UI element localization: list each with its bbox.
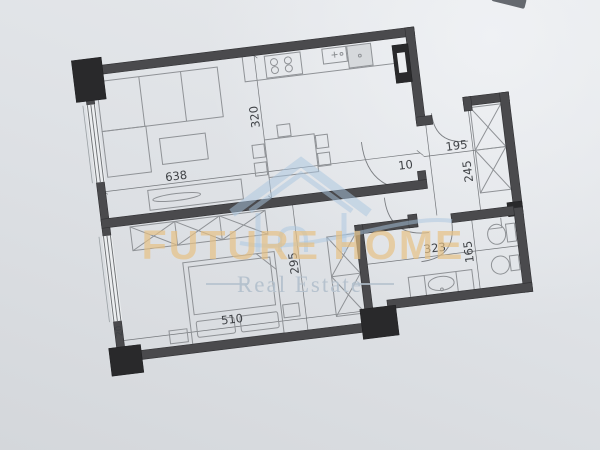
bidet-bowl: [490, 255, 510, 275]
floor-plan-photo: 320 638 10 195 245 295 510 20 323 165 FU: [0, 0, 600, 450]
sink-faucet-cross: [331, 51, 338, 58]
coffee-table: [159, 133, 208, 164]
stove-burner: [271, 66, 279, 74]
dim-living-depth: 320: [246, 105, 263, 128]
walls: [71, 8, 537, 376]
sofa-cushion-lines: [139, 72, 187, 127]
entrance-pivot: [463, 96, 473, 111]
dim-entry-stub: 10: [397, 157, 413, 173]
toilet-tank: [505, 223, 516, 242]
stove-burner: [284, 57, 292, 65]
column-bottom-middle: [360, 305, 399, 339]
dim-hall-depth: 245: [459, 160, 476, 183]
stove: [264, 52, 302, 78]
basin-drain: [440, 288, 443, 291]
dim-left-wall: 20: [114, 325, 125, 337]
sofa: [96, 67, 223, 131]
sideboard-dish: [152, 191, 200, 204]
dim-bedroom-width: 510: [220, 311, 243, 328]
dim-living-width: 638: [164, 168, 187, 185]
bath-bottom-wall: [387, 282, 533, 309]
plan-rotated-group: 320 638 10 195 245 295 510 20 323 165: [71, 8, 537, 376]
watermark-tagline-text: Real Estate: [237, 272, 363, 297]
middle-wall-stub: [417, 171, 426, 181]
living-wall-cap: [416, 115, 433, 126]
dim-line-245: [468, 106, 481, 210]
bath-top-wall-right: [451, 206, 515, 223]
nightstand: [169, 329, 188, 344]
dining-chair: [277, 124, 291, 137]
toilet-bowl: [486, 223, 506, 245]
dining-chair: [315, 134, 328, 148]
nightstand: [283, 303, 300, 318]
sofa-chaise: [102, 126, 151, 177]
vanity-basin: [427, 275, 455, 292]
dining-chair: [252, 144, 265, 158]
corner-column-bottomleft: [109, 345, 144, 377]
jamb-guide-line: [424, 114, 436, 215]
dim-hall-width: 195: [445, 137, 468, 154]
stove-burner: [270, 58, 278, 66]
corner-column-topleft: [71, 57, 106, 102]
floor-plan-drawing: 320 638 10 195 245 295 510 20 323 165 FU: [0, 0, 600, 450]
fridge: [347, 43, 374, 68]
stove-burner: [285, 64, 293, 72]
watermark-brand-text: FUTURE HOME: [142, 222, 465, 268]
sink-drain: [340, 52, 343, 55]
bidet-tank: [509, 255, 520, 271]
dining-chair: [254, 162, 267, 176]
dimension-lines: [87, 23, 525, 352]
right-wall-lower: [514, 207, 533, 292]
bedroom-bottom-wall: [117, 322, 372, 362]
